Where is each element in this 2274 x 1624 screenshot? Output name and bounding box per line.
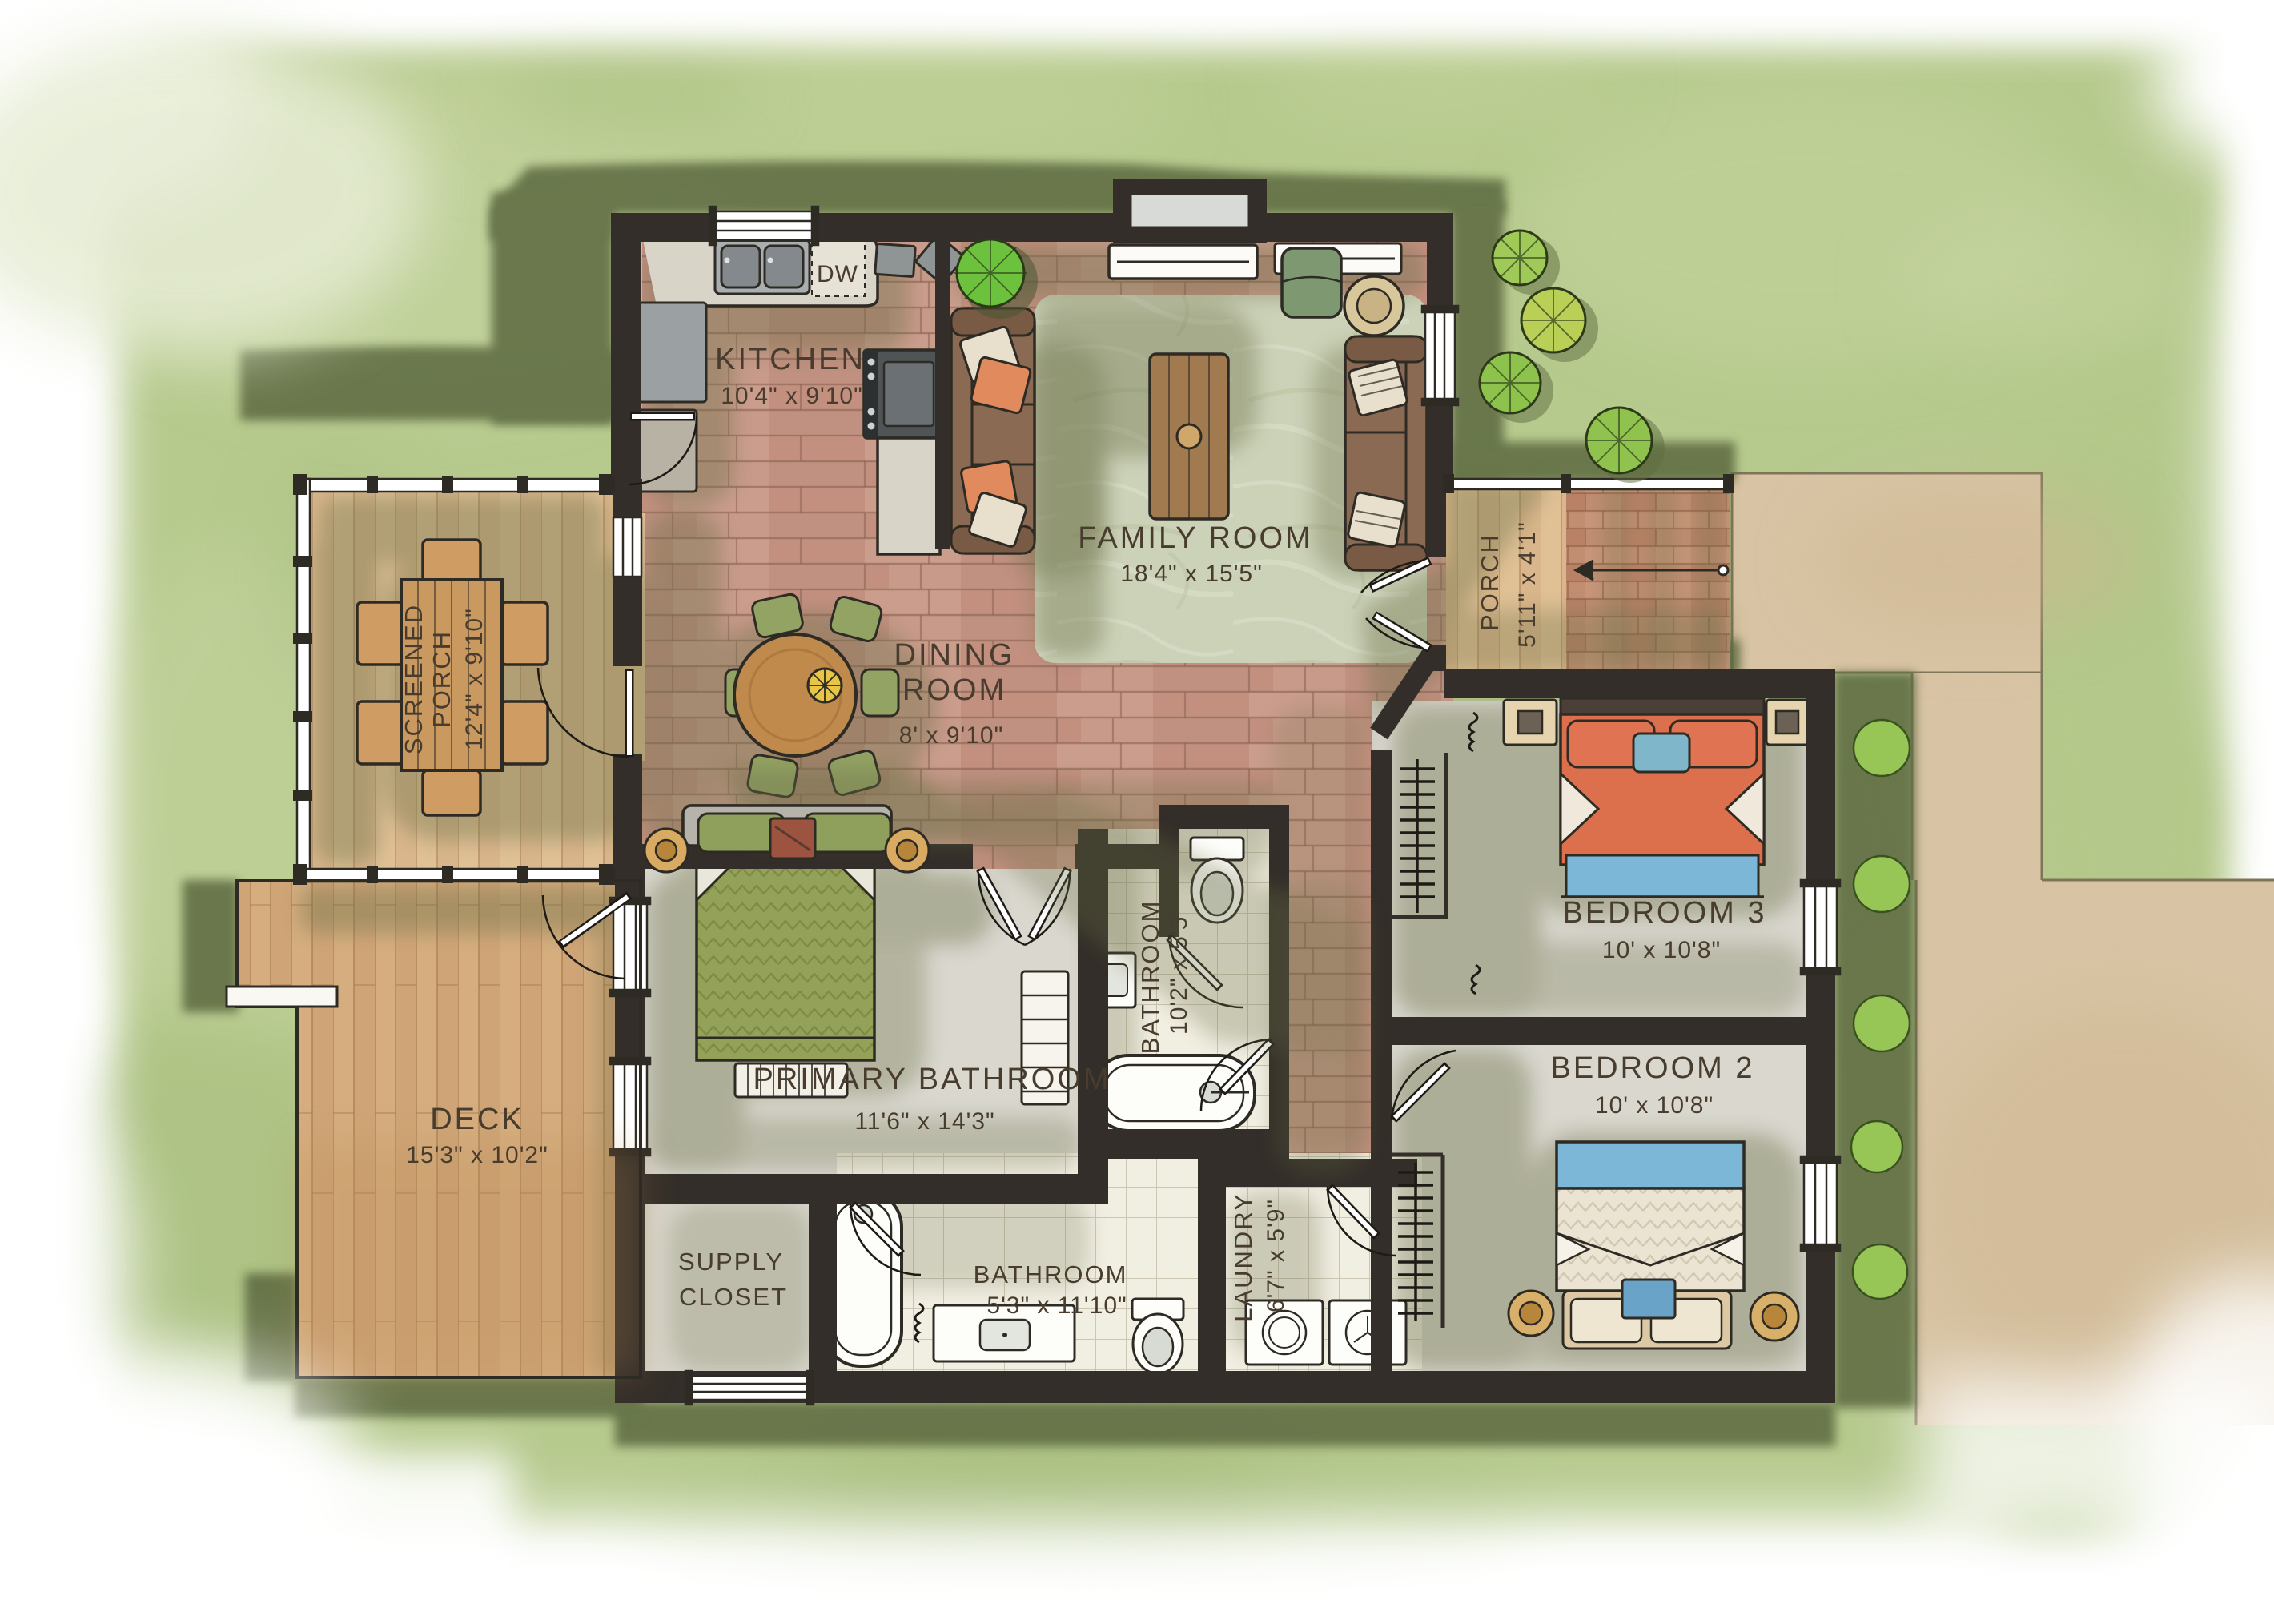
svg-text:KITCHEN: KITCHEN — [715, 343, 866, 376]
svg-text:BATHROOM: BATHROOM — [1136, 900, 1164, 1055]
svg-text:5'11" x 4'1": 5'11" x 4'1" — [1514, 521, 1541, 648]
svg-text:6'7" x 5'9": 6'7" x 5'9" — [1263, 1199, 1289, 1312]
svg-text:FAMILY ROOM: FAMILY ROOM — [1078, 521, 1312, 555]
svg-text:LAUNDRY: LAUNDRY — [1229, 1192, 1257, 1322]
svg-text:10' x 10'8": 10' x 10'8" — [1595, 1092, 1714, 1119]
svg-text:DECK: DECK — [430, 1103, 524, 1136]
svg-text:5'3" x 11'10": 5'3" x 11'10" — [986, 1292, 1127, 1319]
svg-text:10'4" x 9'10": 10'4" x 9'10" — [721, 383, 863, 409]
svg-text:PORCH: PORCH — [1476, 533, 1504, 631]
svg-text:DW: DW — [817, 261, 858, 287]
svg-text:15'3" x 10'2": 15'3" x 10'2" — [406, 1142, 548, 1168]
svg-text:BEDROOM 3: BEDROOM 3 — [1562, 896, 1766, 930]
svg-text:10'2" x 5'5": 10'2" x 5'5" — [1166, 906, 1192, 1035]
svg-text:BATHROOM: BATHROOM — [974, 1260, 1128, 1288]
svg-text:11'6" x 14'3": 11'6" x 14'3" — [854, 1108, 994, 1135]
svg-text:8' x 9'10": 8' x 9'10" — [899, 722, 1004, 749]
svg-text:18'4" x 15'5": 18'4" x 15'5" — [1120, 561, 1263, 587]
svg-text:PORCH: PORCH — [428, 630, 456, 728]
svg-text:ROOM: ROOM — [902, 673, 1006, 707]
svg-text:CLOSET: CLOSET — [679, 1283, 788, 1311]
svg-text:12'4" x 9'10": 12'4" x 9'10" — [461, 608, 488, 750]
svg-text:BEDROOM 2: BEDROOM 2 — [1550, 1051, 1754, 1085]
svg-text:10' x 10'8": 10' x 10'8" — [1602, 937, 1721, 963]
svg-text:SUPPLY: SUPPLY — [678, 1248, 784, 1276]
svg-text:DINING: DINING — [894, 638, 1015, 672]
svg-text:PRIMARY BATHROOM: PRIMARY BATHROOM — [753, 1063, 1111, 1096]
svg-text:SCREENED: SCREENED — [400, 604, 428, 754]
